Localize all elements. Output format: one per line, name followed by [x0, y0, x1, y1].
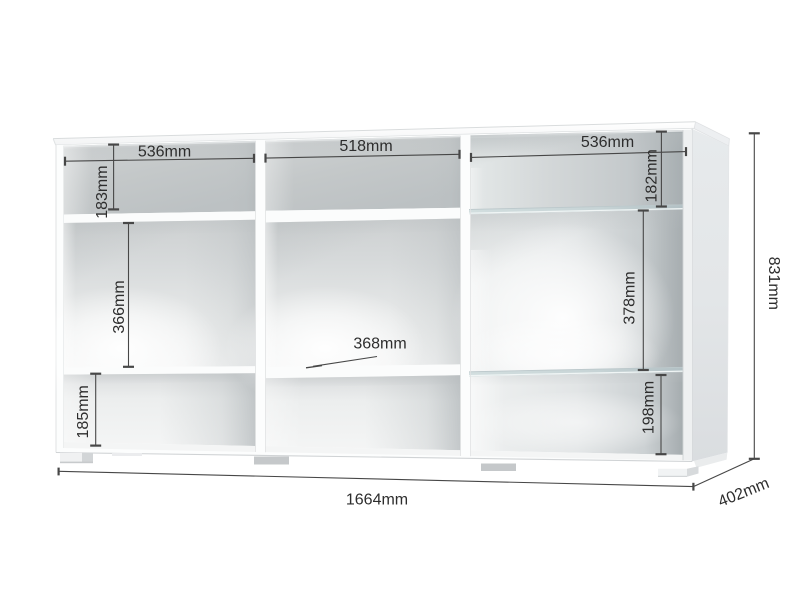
svg-text:1664mm: 1664mm [346, 492, 408, 509]
svg-text:185mm: 185mm [75, 385, 92, 438]
svg-text:831mm: 831mm [765, 257, 782, 310]
svg-text:183mm: 183mm [94, 165, 111, 218]
svg-text:536mm: 536mm [581, 134, 634, 151]
svg-text:198mm: 198mm [641, 381, 658, 434]
svg-text:366mm: 366mm [111, 280, 128, 333]
svg-text:518mm: 518mm [339, 138, 392, 155]
svg-text:368mm: 368mm [353, 335, 406, 352]
svg-text:182mm: 182mm [643, 149, 660, 202]
svg-text:378mm: 378mm [622, 271, 639, 324]
svg-text:536mm: 536mm [138, 143, 191, 160]
